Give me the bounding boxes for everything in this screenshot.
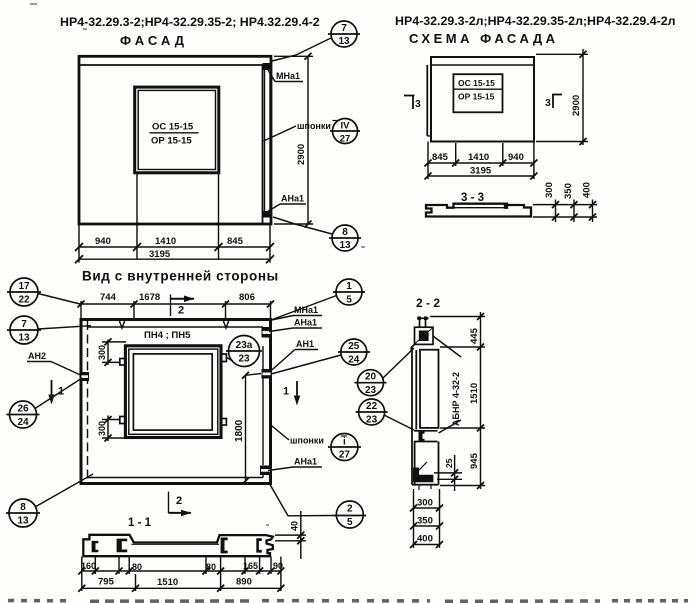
svg-text:27: 27 xyxy=(339,450,351,461)
svg-text:ФАСАД: ФАСАД xyxy=(120,33,188,48)
svg-text:ОР 15-15: ОР 15-15 xyxy=(151,136,192,147)
svg-text:1410: 1410 xyxy=(155,236,176,247)
svg-text:350: 350 xyxy=(417,516,433,527)
svg-text:23: 23 xyxy=(366,415,378,426)
svg-text:i: i xyxy=(343,437,346,448)
svg-text:СХЕМА ФАСАДА: СХЕМА ФАСАДА xyxy=(409,31,559,46)
svg-text:АНа1: АНа1 xyxy=(294,457,317,467)
svg-text:940: 940 xyxy=(95,236,111,247)
svg-text:НР4-32.29.3-2л;НР4-32.29.35-2л: НР4-32.29.3-2л;НР4-32.29.35-2л;НР4-32.29… xyxy=(395,14,676,28)
svg-text:1: 1 xyxy=(346,281,352,292)
svg-text:2: 2 xyxy=(347,504,353,515)
svg-text:МНа1: МНа1 xyxy=(276,71,300,81)
svg-text:23а: 23а xyxy=(236,340,253,351)
svg-text:806: 806 xyxy=(239,292,255,303)
svg-text:160: 160 xyxy=(81,561,96,571)
svg-text:300: 300 xyxy=(97,345,107,360)
svg-text:3195: 3195 xyxy=(149,249,171,260)
svg-text:ПН4 ; ПН5: ПН4 ; ПН5 xyxy=(144,330,191,341)
svg-text:1 - 1: 1 - 1 xyxy=(128,517,152,529)
svg-text:1410: 1410 xyxy=(468,152,489,163)
svg-text:8: 8 xyxy=(20,502,26,513)
svg-text:940: 940 xyxy=(508,152,524,163)
svg-text:24: 24 xyxy=(17,417,29,428)
svg-text:27: 27 xyxy=(340,134,351,145)
svg-text:2900: 2900 xyxy=(571,95,582,116)
svg-text:АНа1: АНа1 xyxy=(281,194,304,204)
svg-text:ОС 15-15: ОС 15-15 xyxy=(152,122,194,133)
svg-text:445: 445 xyxy=(469,327,480,344)
svg-text:шпонки: шпонки xyxy=(297,121,331,131)
svg-text:744: 744 xyxy=(100,292,117,303)
svg-text:АНа1: АНа1 xyxy=(294,318,317,328)
svg-text:400: 400 xyxy=(417,534,433,545)
svg-text:80: 80 xyxy=(132,562,142,572)
svg-text:90: 90 xyxy=(273,561,283,571)
svg-text:300: 300 xyxy=(544,182,555,198)
svg-text:IV: IV xyxy=(341,121,351,132)
svg-text:13: 13 xyxy=(338,36,350,47)
svg-text:Вид с внутренней стороны: Вид с внутренней стороны xyxy=(82,269,279,284)
svg-text:25: 25 xyxy=(444,458,454,468)
svg-text:165: 165 xyxy=(243,561,258,571)
svg-text:2: 2 xyxy=(176,495,182,507)
svg-text:23: 23 xyxy=(365,385,377,396)
svg-text:26: 26 xyxy=(17,404,29,415)
svg-text:300: 300 xyxy=(417,498,433,509)
svg-text:7: 7 xyxy=(21,319,27,330)
svg-text:25: 25 xyxy=(348,341,360,352)
svg-text:5: 5 xyxy=(347,517,353,528)
svg-text:3 - 3: 3 - 3 xyxy=(461,192,484,204)
svg-text:24: 24 xyxy=(348,355,360,366)
svg-text:АБНР 4-32-2: АБНР 4-32-2 xyxy=(451,372,461,426)
svg-text:13: 13 xyxy=(18,333,30,344)
svg-text:20: 20 xyxy=(365,372,377,383)
svg-text:945: 945 xyxy=(469,452,480,469)
svg-text:шпонки: шпонки xyxy=(290,436,324,446)
svg-text:1510: 1510 xyxy=(157,577,178,588)
svg-text:5: 5 xyxy=(346,295,352,306)
svg-text:845: 845 xyxy=(432,152,449,163)
svg-text:1800: 1800 xyxy=(234,419,245,442)
svg-text:80: 80 xyxy=(206,562,216,572)
svg-text:22: 22 xyxy=(366,401,378,412)
svg-text:22: 22 xyxy=(18,295,30,306)
svg-text:7: 7 xyxy=(341,23,347,34)
svg-text:1510: 1510 xyxy=(469,383,480,404)
svg-text:2 - 2: 2 - 2 xyxy=(416,296,440,310)
svg-text:350: 350 xyxy=(563,183,574,199)
svg-text:2: 2 xyxy=(178,305,184,317)
svg-text:3195: 3195 xyxy=(470,166,492,177)
svg-text:1678: 1678 xyxy=(139,292,160,303)
svg-text:40: 40 xyxy=(290,521,300,531)
svg-text:АН1: АН1 xyxy=(296,339,314,349)
svg-text:3: 3 xyxy=(415,98,421,110)
svg-text:ОР 15-15: ОР 15-15 xyxy=(458,92,495,102)
svg-text:23: 23 xyxy=(238,354,250,365)
svg-text:1: 1 xyxy=(283,386,289,398)
svg-text:17: 17 xyxy=(18,281,30,292)
svg-text:795: 795 xyxy=(98,577,115,588)
svg-text:3: 3 xyxy=(545,97,551,109)
svg-text:845: 845 xyxy=(227,236,244,247)
svg-text:13: 13 xyxy=(339,240,351,251)
svg-text:НР4-32.29.3-2;НР4-32.29.35-2;: НР4-32.29.3-2;НР4-32.29.35-2; НР4.32.29.… xyxy=(60,15,320,29)
svg-text:ОС 15-15: ОС 15-15 xyxy=(458,78,495,88)
svg-text:890: 890 xyxy=(236,577,252,588)
svg-text:АН2: АН2 xyxy=(28,351,46,361)
svg-text:300: 300 xyxy=(97,421,107,436)
svg-text:8: 8 xyxy=(342,227,348,238)
svg-text:2900: 2900 xyxy=(296,144,307,165)
svg-text:400: 400 xyxy=(582,182,593,198)
svg-text:13: 13 xyxy=(17,516,29,527)
